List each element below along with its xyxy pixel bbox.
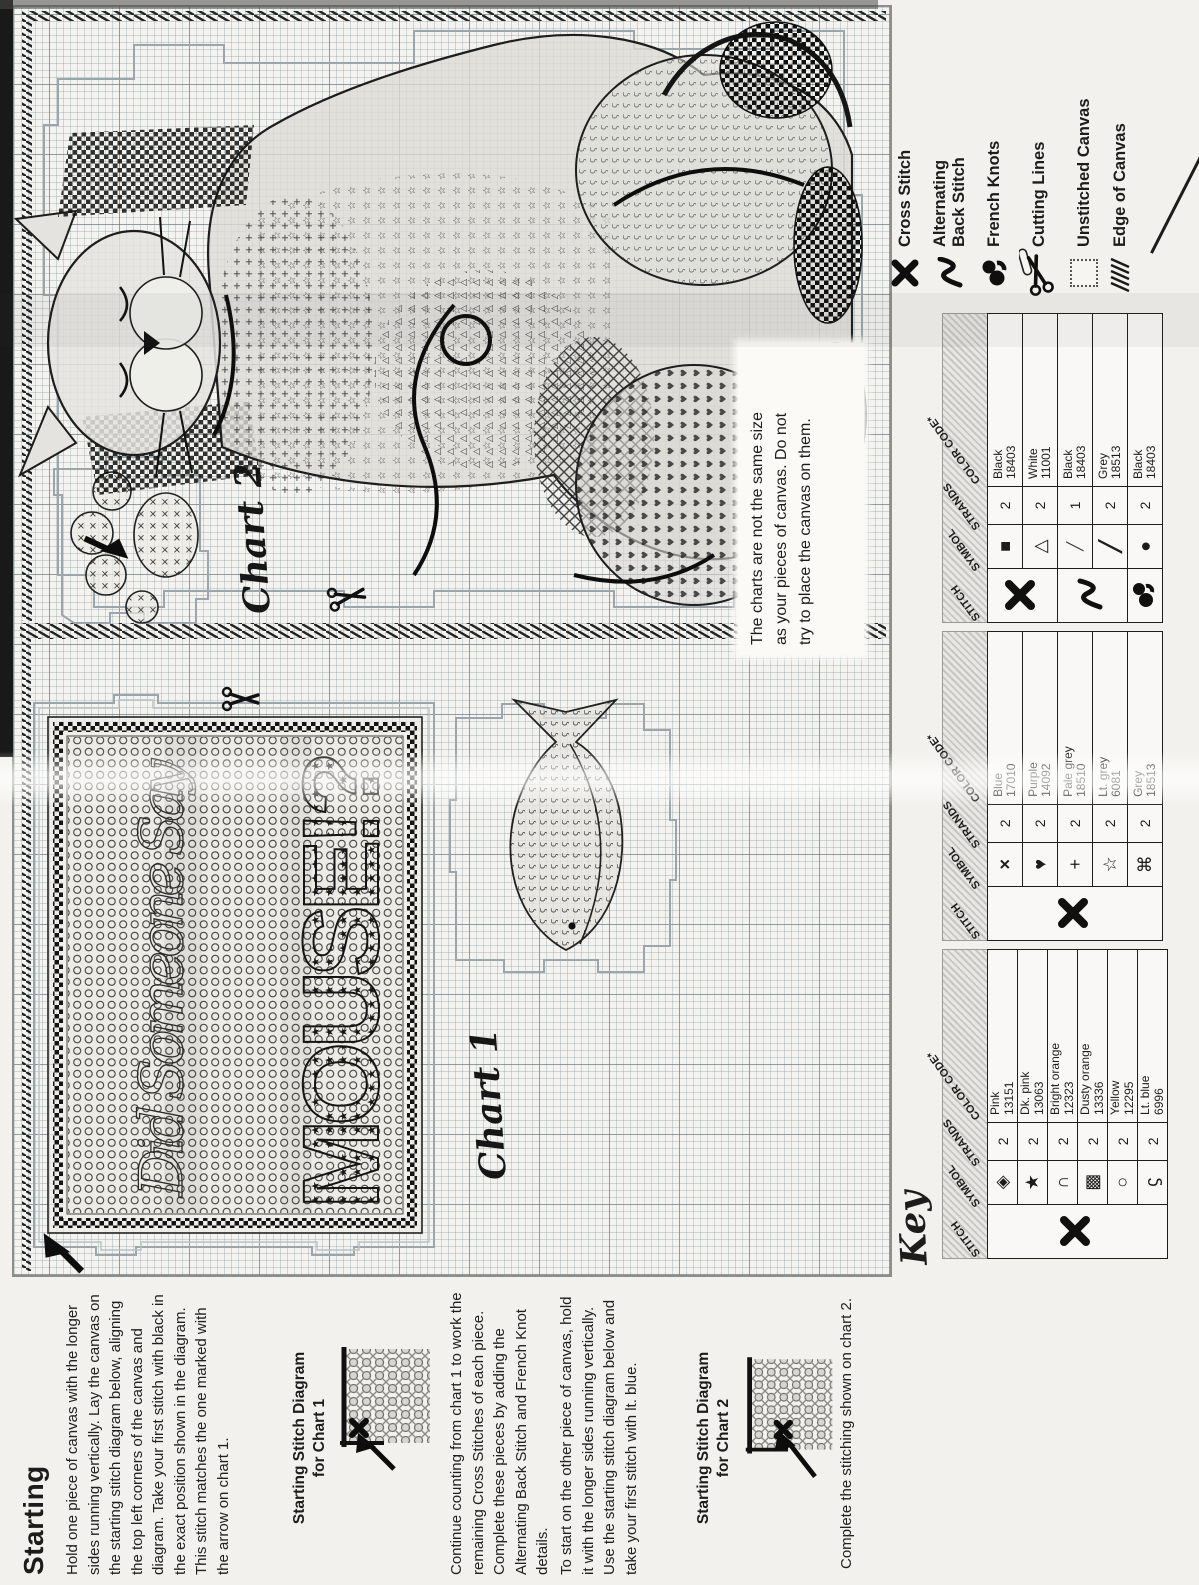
legend-label-line1: Alternating <box>931 160 949 247</box>
color-name: Black <box>991 450 1005 479</box>
scissors-icon-chart1 <box>223 688 258 710</box>
color-cell: Dusty orange13336 <box>1078 950 1108 1123</box>
note-line3: try to place the canvas on them. <box>797 418 814 645</box>
diagram1-title-line1: Starting Stitch Diagram <box>291 1352 308 1524</box>
symbol-cell: ╱ <box>1093 524 1128 568</box>
strands-cell: 2 <box>1093 804 1128 842</box>
diagram2-title-line1: Starting Stitch Diagram <box>695 1352 712 1524</box>
legend-row-cutting-lines: Cutting Lines <box>1019 7 1059 299</box>
color-name: White <box>1026 448 1040 479</box>
stitch-legend: Cross Stitch Alternating Back Stitch Fre… <box>890 7 1142 299</box>
color-name: Dusty orange <box>1078 1044 1092 1115</box>
color-code: 18403 <box>1144 446 1158 479</box>
strands-cell: 2 <box>988 487 1023 525</box>
rotated-page-content: Starting Hold one piece of canvas with t… <box>0 0 1199 1585</box>
color-code: 13151 <box>1002 1082 1016 1115</box>
symbol-cell: ▩ <box>1078 1160 1108 1204</box>
symbol-cell: ∩ <box>1048 1160 1078 1204</box>
legend-label-line2: Back Stitch <box>950 157 968 247</box>
legend-row-unstitched-canvas: Unstitched Canvas <box>1070 7 1098 299</box>
table-row: ╱ 1 Black18403 <box>1058 314 1093 623</box>
fish-motif <box>450 700 676 972</box>
instructions-paragraph-3: To start on the other piece of canvas, h… <box>556 1286 642 1575</box>
symbol-cell: ╱ <box>1058 524 1093 568</box>
color-name: Yellow <box>1108 1081 1122 1115</box>
instructions-paragraph-4: Complete the stitching shown on chart 2. <box>836 1287 858 1569</box>
strands-cell: 2 <box>1018 1122 1048 1160</box>
color-code: 18513 <box>1109 446 1123 479</box>
edge-of-canvas-hatch-chart1-top <box>22 639 31 1271</box>
symbol-cell: ◈ <box>988 1160 1018 1204</box>
color-name: Bright orange <box>1048 1043 1062 1115</box>
alternating-back-stitch-icon <box>1058 568 1128 622</box>
note-box: The charts are not the same size as your… <box>738 343 864 655</box>
french-knots-icon <box>980 247 1008 299</box>
color-name: Lt. blue <box>1138 1076 1152 1115</box>
strands-cell: 2 <box>988 1122 1018 1160</box>
symbol-cell: ● <box>1128 524 1163 568</box>
scan-shade-band <box>0 293 1199 347</box>
header-stitch: STITCH <box>949 582 983 623</box>
symbol-cell: ○ <box>1108 1160 1138 1204</box>
color-name: Dk. pink <box>1018 1072 1032 1115</box>
header-strands: STRANDS <box>941 1116 983 1168</box>
color-code: 12323 <box>1062 1082 1076 1115</box>
strands-cell: 2 <box>1128 487 1163 525</box>
symbol-cell: ϛ <box>1138 1160 1168 1204</box>
table-row: ■ 2 Black18403 <box>988 314 1023 623</box>
cat-dark-patch-right <box>58 125 254 217</box>
instructions-paragraph-2: Continue counting from chart 1 to work t… <box>446 1286 554 1575</box>
legend-label: Unstitched Canvas <box>1075 98 1094 247</box>
strands-cell: 2 <box>1023 487 1058 525</box>
header-symbol: SYMBOL <box>945 844 983 891</box>
header-stitch: STITCH <box>949 1218 983 1259</box>
strands-cell: 2 <box>1078 1122 1108 1160</box>
color-cell: Dk. pink13063 <box>1018 950 1048 1123</box>
legend-row-french-knots: French Knots <box>980 7 1008 299</box>
sampler-script-text: Did Someone Say <box>127 757 197 1198</box>
cross-stitch-icon <box>988 1204 1168 1258</box>
french-knots-icon <box>1128 568 1163 622</box>
legend-label: French Knots <box>985 141 1004 247</box>
color-code: 11001 <box>1039 447 1053 479</box>
key-label: Key <box>890 1190 936 1266</box>
legend-label: Cutting Lines <box>1030 142 1049 247</box>
starting-stitch-diagram-1 <box>334 1341 438 1473</box>
color-code: 12295 <box>1122 1082 1136 1115</box>
scan-fold-light-band <box>0 751 1199 807</box>
cutting-lines-scissors-icon <box>1019 247 1059 299</box>
alternating-back-stitch-icon <box>935 247 965 299</box>
symbol-cell: + <box>1058 842 1093 886</box>
symbol-cell: ☆ <box>1093 842 1128 886</box>
note-line1: The charts are not the same size <box>749 412 766 645</box>
key-table-3-header: STITCH SYMBOL STRANDS COLOR CODE* <box>942 313 987 623</box>
diagram1-title: Starting Stitch Diagram for Chart 1 <box>290 1307 330 1569</box>
table-row: ● 2 Black18403 <box>1128 314 1163 623</box>
starting-stitch-diagram-2 <box>740 1349 840 1481</box>
color-name: Grey <box>1096 453 1110 479</box>
cross-stitch-icon <box>890 247 920 299</box>
legend-row-alternating-back-stitch: Alternating Back Stitch <box>931 7 969 299</box>
header-symbol: SYMBOL <box>945 1162 983 1209</box>
header-strands: STRANDS <box>941 480 983 532</box>
color-cell: Bright orange12323 <box>1048 950 1078 1123</box>
color-code: 18403 <box>1074 446 1088 479</box>
strands-cell: 2 <box>988 804 1023 842</box>
color-code: 18403 <box>1004 446 1018 479</box>
legend-label: Alternating Back Stitch <box>931 157 969 247</box>
strands-cell: 1 <box>1058 487 1093 525</box>
chart1-label: Chart 1 <box>463 1027 515 1181</box>
symbol-cell: ★ <box>1018 1160 1048 1204</box>
strands-cell: 2 <box>1058 804 1093 842</box>
chart1-start-arrow <box>44 1233 82 1271</box>
symbol-cell: ♥ <box>1023 842 1058 886</box>
color-cell: Pink13151 <box>988 950 1018 1123</box>
paw-stitch-fill <box>71 472 198 623</box>
color-name: Pink <box>988 1092 1002 1115</box>
color-code: 6996 <box>1152 1088 1166 1115</box>
table-row: ◈ 2 Pink13151 <box>988 950 1018 1259</box>
color-name: Black <box>1061 450 1075 479</box>
cat-muzzle-left <box>130 339 202 411</box>
color-code: 13063 <box>1032 1082 1046 1115</box>
symbol-cell: ■ <box>988 524 1023 568</box>
symbol-cell: × <box>988 842 1023 886</box>
key-table-3: STITCH SYMBOL STRANDS COLOR CODE* ■ 2 Bl… <box>942 313 1163 623</box>
color-cell: Lt. blue6996 <box>1138 950 1168 1123</box>
diagram2-title: Starting Stitch Diagram for Chart 2 <box>694 1307 734 1569</box>
header-colorcode: COLOR CODE* <box>925 1049 983 1123</box>
fish-eye-french-knot <box>568 922 575 929</box>
strands-cell: 2 <box>1128 804 1163 842</box>
strands-cell: 2 <box>1023 804 1058 842</box>
color-cell: Yellow12295 <box>1108 950 1138 1123</box>
header-symbol: SYMBOL <box>945 526 983 573</box>
diagram2-title-line2: for Chart 2 <box>715 1399 732 1477</box>
unstitched-canvas-icon <box>1070 247 1098 299</box>
instructions-paragraph-1: Hold one piece of canvas with the longer… <box>62 1286 234 1575</box>
cat-tail-tip <box>720 22 832 118</box>
header-stitch: STITCH <box>949 900 983 941</box>
strands-cell: 2 <box>1138 1122 1168 1160</box>
key-table-1: STITCH SYMBOL STRANDS COLOR CODE* ◈ 2 Pi… <box>942 949 1168 1259</box>
strands-cell: 2 <box>1093 487 1128 525</box>
color-code: 13336 <box>1092 1082 1106 1115</box>
strands-cell: 2 <box>1048 1122 1078 1160</box>
legend-label: Cross Stitch <box>896 150 915 247</box>
symbol-cell: ⌘ <box>1128 842 1163 886</box>
legend-row-cross-stitch: Cross Stitch <box>890 7 920 299</box>
legend-row-edge-of-canvas: Edge of Canvas <box>1109 7 1131 299</box>
color-name: Black <box>1131 450 1145 479</box>
cross-stitch-icon <box>988 886 1163 940</box>
note-line2: as your pieces of canvas. Do not <box>773 413 790 645</box>
cross-stitch-icon <box>988 568 1058 622</box>
legend-label: Edge of Canvas <box>1111 123 1130 247</box>
key-table-1-header: STITCH SYMBOL STRANDS COLOR CODE* <box>942 949 987 1259</box>
edge-of-canvas-hatch-chart2-right <box>22 11 886 21</box>
scanned-pattern-page: Starting Hold one piece of canvas with t… <box>0 0 1199 1585</box>
scanner-edge-strip <box>0 0 13 757</box>
strands-cell: 2 <box>1108 1122 1138 1160</box>
header-colorcode: COLOR CODE* <box>925 413 983 487</box>
symbol-cell: △ <box>1023 524 1058 568</box>
edge-of-canvas-icon <box>1109 247 1131 299</box>
scanner-edge-strip-2 <box>0 0 878 9</box>
sampler-mouse-text: MOUSE!? <box>280 747 401 1209</box>
diagram1-title-line2: for Chart 1 <box>311 1399 328 1477</box>
edge-of-canvas-pointer-line <box>1150 138 1199 253</box>
starting-heading: Starting <box>18 1465 50 1575</box>
